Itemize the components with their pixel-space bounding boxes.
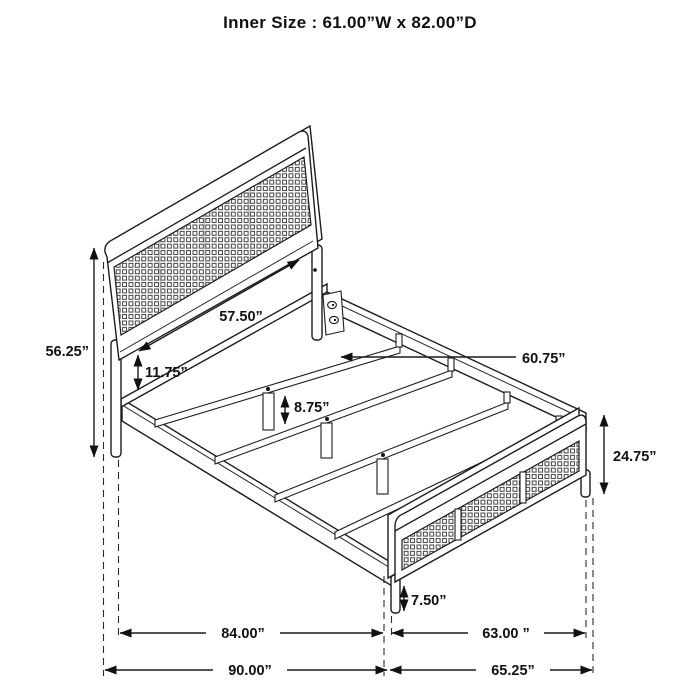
dim-label-slat-length: 60.75” xyxy=(522,351,566,367)
slat-hook xyxy=(396,334,402,347)
slat-1 xyxy=(155,346,400,427)
dim-label-footboard-span-overall: 65.25” xyxy=(491,663,535,679)
bolt-dot xyxy=(313,268,317,272)
dim-label-footboard-span-inner: 63.00 ” xyxy=(482,626,530,642)
footboard-mesh-bar xyxy=(520,472,526,503)
dim-label-footboard-height: 24.75” xyxy=(613,449,657,465)
dim-label-overall-length: 90.00” xyxy=(228,663,272,679)
slat-2 xyxy=(215,370,452,464)
dim-label-headboard-width: 57.50” xyxy=(219,309,263,325)
support-leg-2 xyxy=(321,423,332,458)
dim-label-footboard-leg: 7.50” xyxy=(411,593,446,609)
bolt-dot xyxy=(325,417,329,421)
headboard-right-leg xyxy=(312,245,322,340)
diagram-canvas: 57.50” 56.25” 11.75” 60.75” 8.75” 24.75”… xyxy=(0,0,700,700)
dim-label-frame-length: 84.00” xyxy=(221,626,265,642)
bed-dimension-diagram: 57.50” 56.25” 11.75” 60.75” 8.75” 24.75”… xyxy=(0,0,700,700)
support-leg-3 xyxy=(377,459,388,494)
slat-hook xyxy=(448,358,454,371)
left-side-rail xyxy=(122,399,397,589)
bed-frame xyxy=(121,284,586,589)
mounting-bracket xyxy=(323,291,344,335)
bolt-dot xyxy=(381,453,385,457)
bolt-dot xyxy=(266,387,270,391)
slat-hook xyxy=(504,392,510,403)
dim-label-support-leg: 8.75” xyxy=(294,400,329,416)
dim-label-rail-gap: 11.75” xyxy=(145,365,188,381)
footboard-mesh-bar xyxy=(455,509,461,540)
support-leg-1 xyxy=(263,393,274,430)
page-title: Inner Size : 61.00”W x 82.00”D xyxy=(223,13,477,32)
dim-label-headboard-height: 56.25” xyxy=(45,344,89,360)
